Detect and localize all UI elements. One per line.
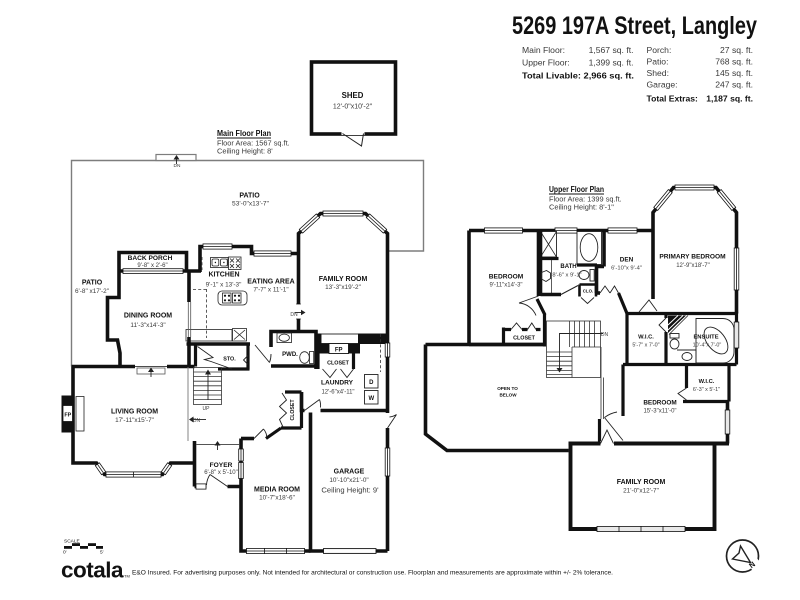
svg-text:Ceiling Height: 9': Ceiling Height: 9' (321, 486, 379, 495)
svg-text:7'-7" x 11'-1": 7'-7" x 11'-1" (253, 287, 288, 294)
svg-text:DINING ROOM: DINING ROOM (124, 313, 172, 320)
svg-text:12'-9"x18'-7": 12'-9"x18'-7" (676, 263, 710, 269)
svg-text:6'-10"x 9'-4": 6'-10"x 9'-4" (611, 266, 642, 272)
svg-text:11'-3"x14'-3": 11'-3"x14'-3" (130, 322, 165, 329)
svg-text:21'-0"x12'-7": 21'-0"x12'-7" (623, 488, 659, 495)
svg-text:Total Extras:: Total Extras: (647, 94, 699, 104)
svg-text:768 sq. ft.: 768 sq. ft. (715, 57, 753, 67)
svg-text:SHED: SHED (342, 91, 364, 100)
svg-text:TM: TM (124, 574, 130, 579)
svg-text:DN: DN (174, 163, 181, 169)
svg-text:5': 5' (100, 550, 104, 556)
svg-text:27 sq. ft.: 27 sq. ft. (720, 45, 753, 55)
svg-text:0': 0' (63, 550, 67, 556)
svg-text:LAUNDRY: LAUNDRY (321, 380, 354, 387)
svg-text:9'-11"x14'-3": 9'-11"x14'-3" (489, 283, 522, 289)
svg-text:Patio:: Patio: (647, 57, 669, 67)
svg-text:PATIO: PATIO (239, 193, 260, 200)
svg-text:CLO.: CLO. (583, 288, 594, 293)
svg-text:PWD.: PWD. (282, 352, 298, 358)
svg-text:CLOSET: CLOSET (513, 336, 536, 342)
svg-text:1,399 sq. ft.: 1,399 sq. ft. (589, 58, 634, 68)
svg-text:PRIMARY BEDROOM: PRIMARY BEDROOM (659, 254, 726, 261)
svg-text:Ceiling Height: 8': Ceiling Height: 8' (217, 147, 273, 156)
svg-text:GARAGE: GARAGE (334, 469, 365, 476)
svg-text:MEDIA ROOM: MEDIA ROOM (254, 487, 300, 494)
svg-text:D: D (369, 380, 374, 386)
svg-text:BEDROOM: BEDROOM (489, 274, 524, 281)
svg-text:Main Floor Plan: Main Floor Plan (217, 129, 271, 138)
svg-text:BATH: BATH (560, 264, 576, 270)
svg-text:Ceiling Height: 8'-1": Ceiling Height: 8'-1" (549, 203, 614, 212)
svg-text:ENSUITE: ENSUITE (693, 335, 718, 341)
svg-text:13'-3"x19'-2": 13'-3"x19'-2" (325, 284, 361, 291)
svg-text:17'-11"x15'-7": 17'-11"x15'-7" (115, 417, 154, 424)
svg-text:6'-8" x 5'-10": 6'-8" x 5'-10" (204, 470, 238, 476)
svg-text:KITCHEN: KITCHEN (208, 272, 239, 279)
svg-text:BEDROOM: BEDROOM (643, 400, 676, 407)
svg-text:5269 197A Street, Langley: 5269 197A Street, Langley (512, 12, 757, 40)
svg-text:FOYER: FOYER (210, 462, 233, 469)
svg-text:W: W (368, 396, 374, 402)
svg-text:Total Livable: 2,966 sq. ft.: Total Livable: 2,966 sq. ft. (522, 71, 634, 81)
svg-text:Garage:: Garage: (647, 80, 678, 90)
svg-text:9'-1" x 13'-3": 9'-1" x 13'-3" (206, 282, 242, 289)
svg-text:Shed:: Shed: (647, 68, 669, 78)
svg-text:10'-10"x21'-0": 10'-10"x21'-0" (329, 477, 368, 484)
svg-text:FAMILY ROOM: FAMILY ROOM (319, 276, 368, 283)
svg-text:10'-4"x 7'-0": 10'-4"x 7'-0" (693, 343, 722, 349)
svg-text:145 sq. ft.: 145 sq. ft. (715, 68, 753, 78)
svg-text:STO.: STO. (223, 357, 236, 363)
svg-text:cotala: cotala (61, 558, 124, 583)
svg-text:6'-8" x17'-2": 6'-8" x17'-2" (75, 288, 109, 295)
svg-text:10'-7"x18'-6": 10'-7"x18'-6" (259, 495, 295, 502)
svg-text:DN: DN (601, 332, 609, 338)
svg-text:FP: FP (64, 413, 71, 419)
svg-text:12'-6"x4'-11": 12'-6"x4'-11" (321, 390, 354, 396)
svg-text:BELOW: BELOW (499, 393, 517, 398)
svg-text:Main Floor:: Main Floor: (522, 45, 565, 55)
svg-text:Upper Floor:: Upper Floor: (522, 58, 570, 68)
svg-text:Upper Floor Plan: Upper Floor Plan (549, 185, 604, 194)
svg-text:W.I.C.: W.I.C. (699, 379, 715, 385)
svg-text:FAMILY ROOM: FAMILY ROOM (617, 479, 666, 486)
svg-text:E&O Insured. For advertising p: E&O Insured. For advertising purposes on… (132, 570, 613, 577)
svg-text:15'-3"x11'-0": 15'-3"x11'-0" (643, 409, 676, 415)
svg-text:DEN: DEN (620, 257, 634, 264)
svg-text:EATING AREA: EATING AREA (247, 279, 294, 286)
svg-text:W.I.C.: W.I.C. (638, 335, 654, 341)
svg-text:CLOSET: CLOSET (327, 361, 350, 367)
svg-text:8'-6" x 9'-1": 8'-6" x 9'-1" (552, 273, 581, 279)
svg-text:BACK PORCH: BACK PORCH (128, 255, 173, 262)
svg-text:247 sq. ft.: 247 sq. ft. (715, 80, 753, 90)
svg-text:LIVING ROOM: LIVING ROOM (111, 409, 158, 416)
svg-text:DN: DN (193, 418, 201, 424)
svg-text:OPEN TO: OPEN TO (497, 386, 518, 391)
svg-text:FP: FP (335, 348, 343, 354)
svg-text:1,187 sq. ft.: 1,187 sq. ft. (706, 94, 753, 104)
svg-text:UP: UP (203, 406, 211, 412)
svg-text:PATIO: PATIO (82, 280, 103, 287)
svg-text:5'-7" x 7'-0": 5'-7" x 7'-0" (632, 343, 659, 349)
svg-text:53'-0"x13'-7": 53'-0"x13'-7" (232, 201, 270, 208)
svg-text:6'-3" x 5'-1": 6'-3" x 5'-1" (693, 387, 720, 393)
svg-text:12'-0"x10'-2": 12'-0"x10'-2" (333, 104, 373, 111)
svg-text:Porch:: Porch: (647, 45, 672, 55)
svg-text:1,567 sq. ft.: 1,567 sq. ft. (589, 45, 634, 55)
svg-text:CLOSET: CLOSET (290, 399, 296, 421)
